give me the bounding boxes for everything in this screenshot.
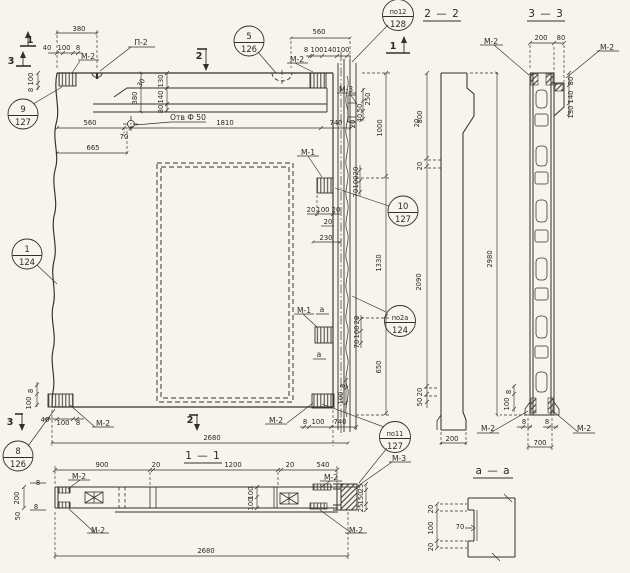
dim-8-s33bl: 8 [522,418,526,426]
dim-2090: 2090 [415,273,423,290]
dim-8-s11b: 8 [34,503,38,511]
dim-100-tr2: 100 [337,46,350,54]
cut-label-3-bl: 3 [7,417,14,428]
dim-40-rib: 40 [356,114,364,123]
dim-900: 900 [96,461,109,469]
dim-2680-s11: 2680 [197,547,214,555]
dim-700-s33: 700 [534,439,547,447]
callout-po2a-num: по2а [392,314,409,322]
dim-40-bot: 40 [41,416,50,424]
dim-8-s33br: 8 [545,418,549,426]
m1-embed-lower [315,327,333,343]
dim-130-s33r: 130 [567,106,575,119]
callout-po11-sheet: 127 [387,441,403,451]
dim-560-top: 560 [313,28,326,36]
dim-2980: 2980 [486,250,494,267]
dim-250-rib: 250 [364,93,372,106]
dim-70-hole: 70 [120,133,129,141]
title-section-2-2: 2 — 2 [424,8,460,20]
dim-20-m1c: 20 [324,218,333,226]
callout-1-sheet: 124 [19,257,35,267]
section-3-3 [512,41,571,450]
dim-230: 230 [320,234,333,242]
label-m2-s11-br: М-2 [349,526,363,535]
callout-po12-sheet: 128 [390,19,406,29]
dim-20-s11b: 20 [286,461,295,469]
dim-8-s33l: 8 [505,390,513,394]
dim-20-rib: 20 [349,120,357,129]
dim-1200: 1200 [224,461,241,469]
dim-1000: 1000 [376,119,384,136]
cut-a-lower: а [317,350,322,359]
dim-20-m1b: 20 [332,206,341,214]
voids [535,90,548,392]
dim-100: 100 [58,44,71,52]
cut-label-1-tr: 1 [390,41,397,52]
dim-25-s11a: 25 [357,484,365,493]
dim-8-s11t: 8 [36,479,40,487]
dim-8-bl: 8 [27,389,35,393]
label-m2-s11-tl: М-2 [72,472,86,481]
dim-30-chamfer: 30 [136,77,147,89]
callout-po11-num: по11 [387,430,404,438]
callout-9-sheet: 127 [15,117,31,127]
dim-100-m1lv: 100 [353,326,361,339]
top-ledge [93,88,327,112]
dim-20-m1lv: 20 [353,316,361,325]
void-butterfly-2 [280,493,298,504]
dim-20-s22: 20 [416,162,424,171]
label-m2-s33-bl: М-2 [481,424,495,433]
dim-200-s11: 200 [13,492,21,505]
dim-1810: 1810 [216,119,233,127]
dim-50-rib: 50 [356,104,364,113]
dim-100-bot: 100 [57,419,70,427]
dim-40: 40 [43,44,52,52]
dim-560-hole: 560 [84,119,97,127]
drawing-sheet: 2 — 2 3 — 3 1 — 1 а — а 380 40 100 8 100… [0,0,630,573]
p2-recess-left [92,73,102,79]
label-m2-bottom-left: М-2 [96,419,110,428]
callout-10-num: 10 [398,201,409,211]
label-m3-top: М-3 [339,85,353,94]
dim-665: 665 [87,144,100,152]
cut-a-upper: а [320,305,325,314]
dim-50-s11: 50 [14,512,22,521]
dim-20-aa2: 20 [427,543,435,552]
dim-20-s11a: 20 [152,461,161,469]
linework [3,0,619,561]
callout-9-num: 9 [20,104,25,114]
label-m2-s11-bl: М-2 [91,526,105,535]
dim-70-aa: 70 [456,523,465,531]
dim-1330: 1330 [375,254,383,271]
label-leaders [68,45,619,533]
dim-100-m1v: 100 [352,176,360,189]
dim-380-band: 380 [131,92,139,105]
annotations: 2 — 2 3 — 3 1 — 1 а — а 380 40 100 8 100… [7,8,615,555]
dim-20-m1a: 20 [307,206,316,214]
callout-5-num: 5 [246,31,251,41]
dim-20-aa1: 20 [427,505,435,514]
right-end-cap [333,484,357,510]
title-section-3-3: 3 — 3 [528,8,564,20]
dim-140-s33r: 140 [567,91,575,104]
label-m2-top-left: М-2 [81,52,95,61]
label-m3-s11: М-3 [392,454,406,463]
dim-200-s22: 200 [446,435,459,443]
dims-main-bottom [35,378,358,446]
dim-100-m1: 100 [317,206,330,214]
dim-100-left: 100 [27,73,35,86]
callout-po2a-sheet: 124 [392,325,408,335]
dim-140-ledge: 140 [157,91,165,104]
label-p2: П-2 [134,38,147,47]
void-butterfly-1 [85,492,103,503]
dim-8: 8 [76,44,80,52]
dim-130-ledge: 130 [157,75,165,88]
title-section-1-1: 1 — 1 [185,450,221,462]
title-section-a-a: а — а [475,465,510,477]
cut-label-1-tl: 1 [27,35,34,46]
dim-50-s22b: 50 [416,398,424,407]
cut-3-bottom-left [15,414,25,431]
label-m1-upper: М-1 [301,148,315,157]
dim-80-ledge: 80 [157,105,165,114]
dim-540: 540 [317,461,330,469]
cut-label-3-tl: 3 [8,56,15,67]
broken-edge-squiggle [346,76,348,417]
label-m2-s33-br: М-2 [577,424,591,433]
dim-380-top: 380 [73,25,86,33]
dim-140-tr: 140 [324,46,337,54]
label-m2-s33-tl: М-2 [484,37,498,46]
dim-100-brv: 100 [337,392,345,405]
dim-8-brv: 8 [339,384,347,388]
rib-top-detail [348,95,356,122]
callout-po12-num: по12 [390,8,407,16]
panel-working-drawing: 2 — 2 3 — 3 1 — 1 а — а 380 40 100 8 100… [0,0,630,573]
dim-8-br: 8 [303,418,307,426]
dim-8-left: 8 [27,88,35,92]
label-m1-lower: М-1 [297,306,311,315]
cut-label-2-top: 2 [196,51,203,62]
dim-2680-main: 2680 [203,434,220,442]
dim-740-top: 740 [330,119,343,127]
dim-80-s33r: 80 [567,77,575,86]
dim-70-m1v: 70 [352,189,360,198]
dim-70-m1lv: 70 [353,340,361,349]
dim-100-br: 100 [312,418,325,426]
callout-8-sheet: 126 [10,459,26,469]
label-m2-s33-tr: М-2 [600,43,614,52]
dim-8-bot: 8 [76,419,80,427]
callout-10-sheet: 127 [395,214,411,224]
panel-left-wavy-edge [52,73,58,407]
callout-8-num: 8 [15,446,20,456]
cut-3-top-left [16,51,31,66]
dim-150-s11: 150 [357,492,365,505]
callout-5-sheet: 126 [241,44,257,54]
window-opening [157,163,293,402]
dim-20-m1v: 20 [352,167,360,176]
dim-100-s11b: 100 [247,498,255,511]
note-hole-f50: Отв Ф 50 [170,113,206,122]
dim-8-tr: 8 [304,46,308,54]
label-m2-s11-tr: М-2 [324,473,338,482]
dim-650: 650 [375,361,383,374]
edge-rib-strip [315,52,356,436]
dim-800: 800 [416,111,424,124]
label-m2-bottom-right: М-2 [269,416,283,425]
dim-200-s33: 200 [535,34,548,42]
dim-25-s11b: 25 [357,504,365,513]
m1-embed-upper [317,178,333,193]
dim-100-tr: 100 [311,46,324,54]
cut-label-2-bot: 2 [187,415,194,426]
dim-100-bl: 100 [25,397,33,410]
dim-20-s22b: 20 [416,388,424,397]
label-m2-top-right: М-2 [290,55,304,64]
hole-f50 [123,116,139,132]
dim-100-s33l: 100 [503,398,511,411]
dim-740-br: 740 [334,418,347,426]
section-a-a [435,494,515,561]
dim-100-aa: 100 [427,522,435,535]
section-2-2 [424,71,527,446]
dim-80-s33: 80 [557,34,566,42]
callout-1-num: 1 [24,244,29,254]
